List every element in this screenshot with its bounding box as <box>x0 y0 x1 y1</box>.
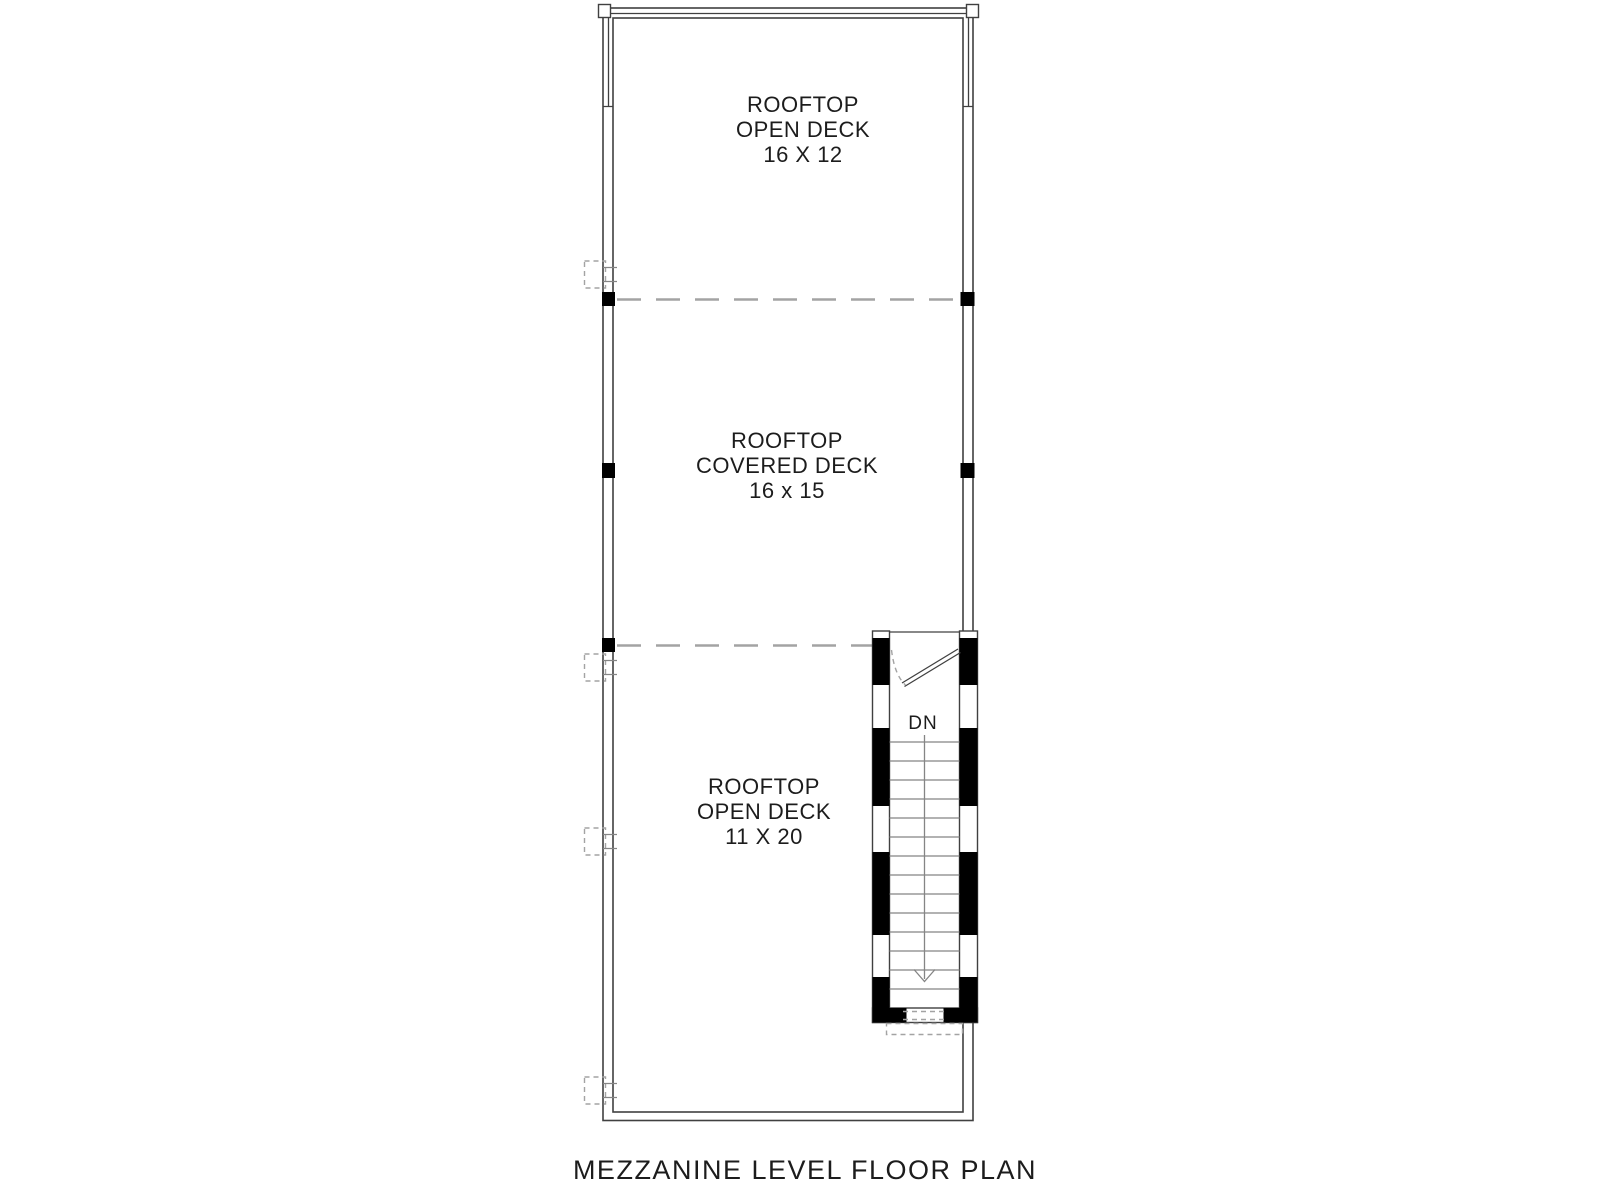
wall-segment-corner <box>873 1008 907 1023</box>
room-label-rooftop-covered-deck: ROOFTOP COVERED DECK 16 x 15 <box>696 428 878 503</box>
floor-plan-drawing <box>0 0 1600 1200</box>
corner-post-right <box>967 5 979 18</box>
room-label-rooftop-open-deck-upper: ROOFTOP OPEN DECK 16 X 12 <box>736 92 870 167</box>
wall-segment-corner <box>944 1008 978 1023</box>
stair-down-label: DN <box>908 713 937 735</box>
stair-door-swing-arc <box>892 650 906 685</box>
wall-segment <box>960 852 978 935</box>
room-dimensions: 16 x 15 <box>696 478 878 503</box>
wall-fixture <box>585 828 618 855</box>
room-dimensions: 16 X 12 <box>736 142 870 167</box>
stairwell <box>873 631 978 1035</box>
room-dimensions: 11 X 20 <box>697 824 831 849</box>
wall-segment <box>873 638 890 685</box>
wall-fixtures <box>585 261 618 1104</box>
room-name-line: OPEN DECK <box>736 117 870 142</box>
room-name-line: ROOFTOP <box>696 428 878 453</box>
building-inner-wall <box>613 18 963 1112</box>
stairwell-left-wall <box>873 631 890 1023</box>
stair-door <box>892 649 961 687</box>
wall-segment <box>873 852 890 935</box>
room-name-line: OPEN DECK <box>697 799 831 824</box>
building-outer-wall <box>603 8 973 1121</box>
wall-post <box>961 292 975 306</box>
corner-post-left <box>599 5 611 18</box>
stairwell-right-wall <box>960 631 978 1023</box>
wall-fixture <box>585 1077 618 1104</box>
plan-title: MEZZANINE LEVEL FLOOR PLAN <box>573 1155 1037 1186</box>
wall-segment <box>873 728 890 806</box>
wall-post <box>602 292 615 306</box>
wall-post <box>961 463 975 478</box>
wall-segment <box>960 728 978 806</box>
wall-post <box>602 463 615 478</box>
room-name-line: ROOFTOP <box>697 774 831 799</box>
wall-fixture <box>585 654 618 681</box>
room-name-line: COVERED DECK <box>696 453 878 478</box>
room-name-line: ROOFTOP <box>736 92 870 117</box>
floor-plan-page: ROOFTOP OPEN DECK 16 X 12 ROOFTOP COVERE… <box>0 0 1600 1200</box>
wall-segment <box>960 638 978 685</box>
stair-door-panel <box>902 649 961 687</box>
wall-post <box>602 638 615 652</box>
building-perimeter <box>599 5 979 1121</box>
wall-fixture <box>585 261 618 288</box>
room-label-rooftop-open-deck-lower: ROOFTOP OPEN DECK 11 X 20 <box>697 774 831 849</box>
landing-dashed-outline <box>887 1024 963 1035</box>
